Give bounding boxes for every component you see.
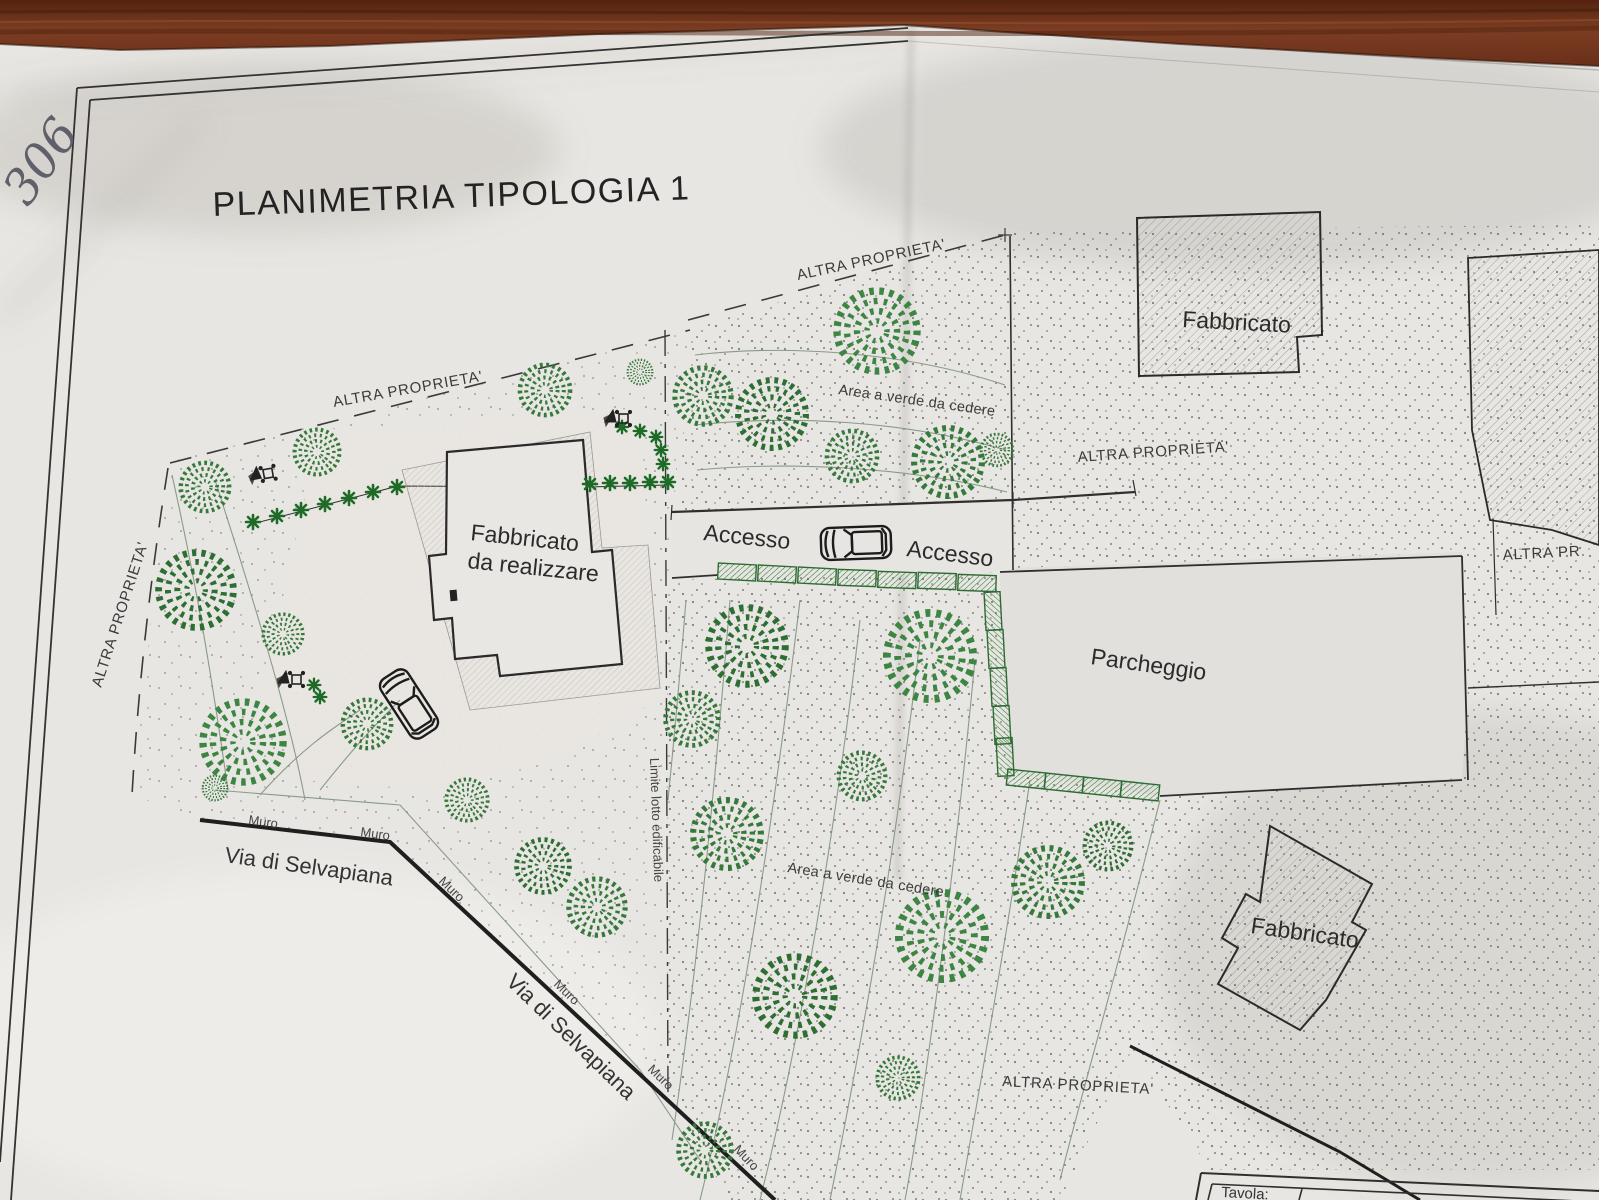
- sheet-label: Tavola:: [1221, 1184, 1269, 1200]
- right-edge-building: [1468, 250, 1599, 545]
- building-top-right: [1137, 212, 1322, 376]
- photo-of-site-plan: PLANIMETRIA TIPOLOGIA 1 ALTRA PROPRIETA'…: [0, 0, 1599, 1200]
- new-building-door: [450, 590, 458, 602]
- parking-area: [1000, 552, 1468, 796]
